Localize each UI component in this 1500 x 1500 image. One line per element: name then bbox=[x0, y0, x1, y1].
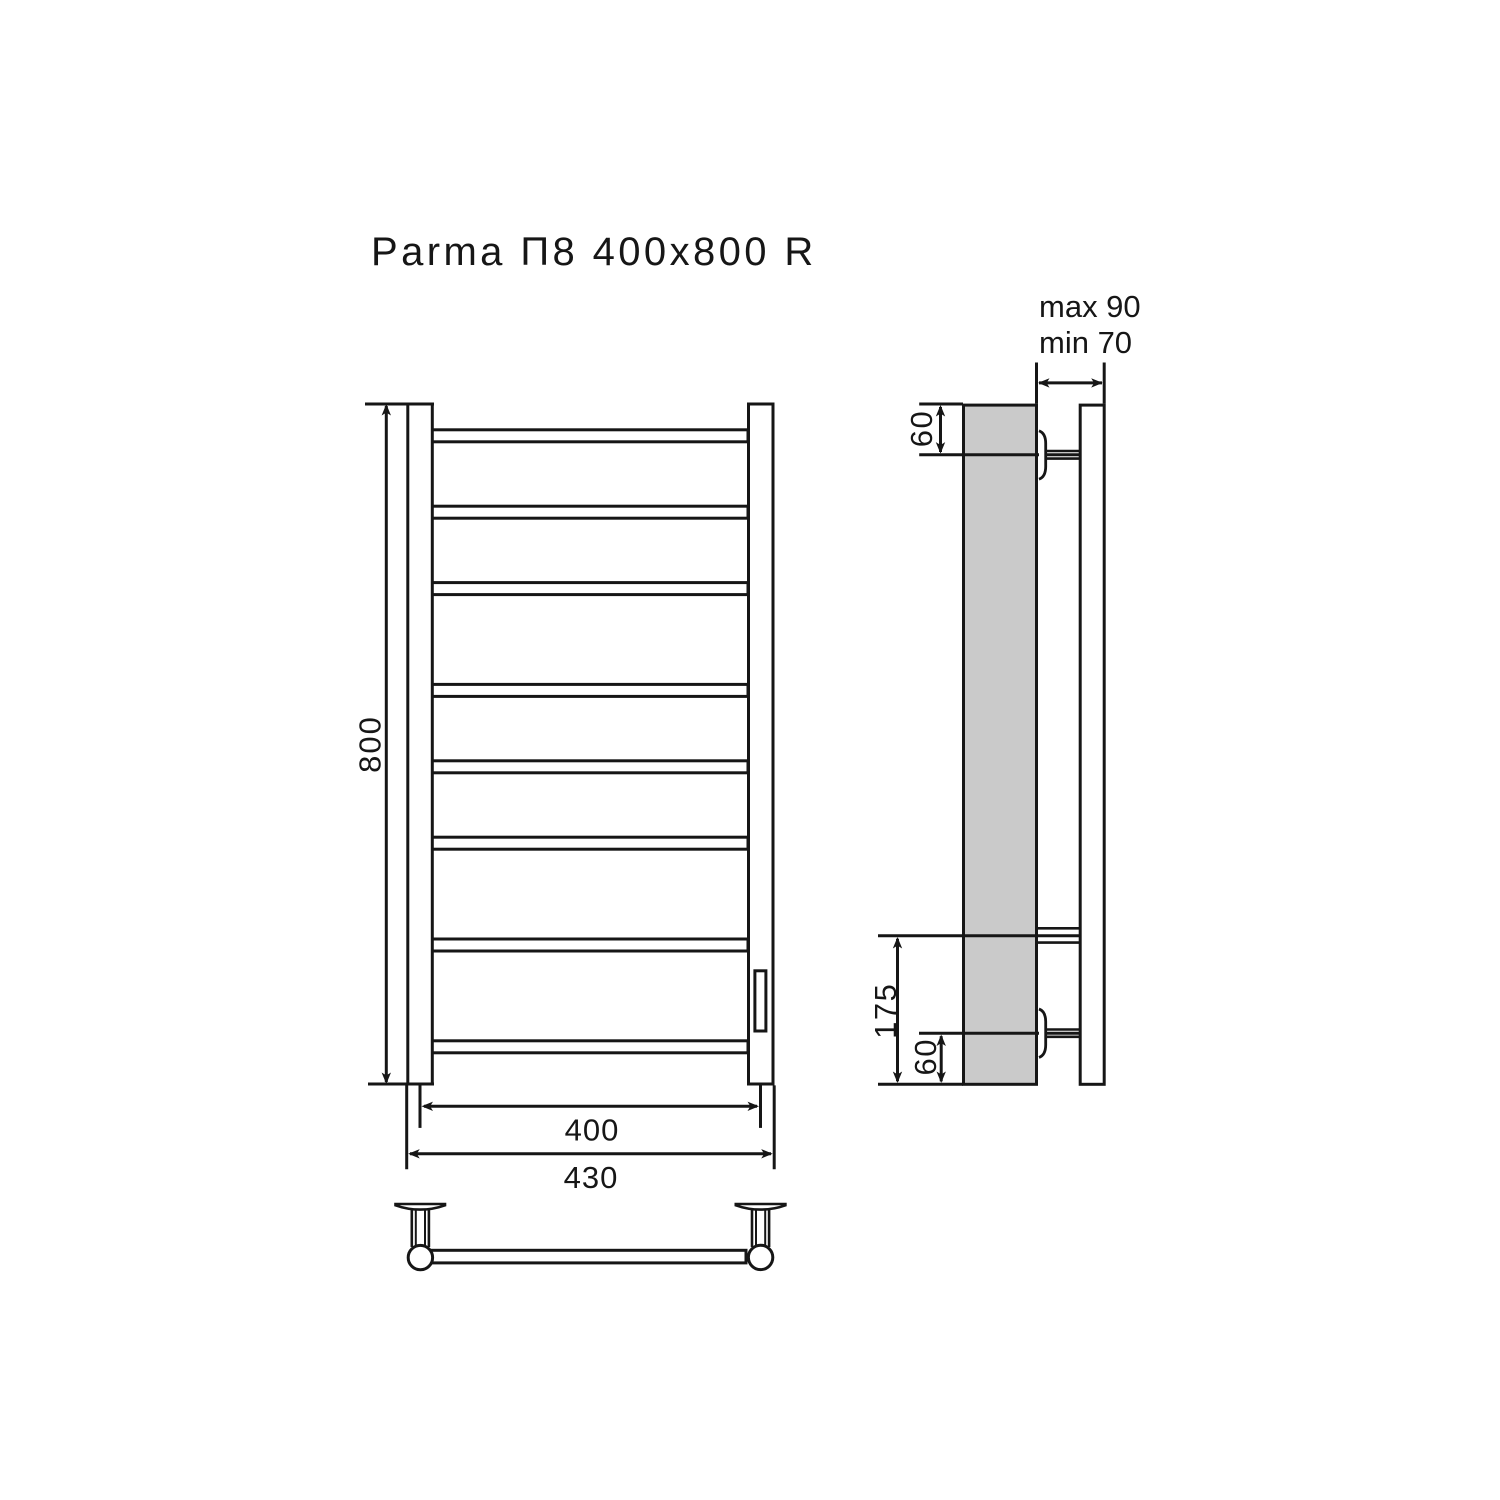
svg-text:800: 800 bbox=[353, 715, 388, 773]
svg-text:175: 175 bbox=[868, 983, 903, 1039]
svg-text:60: 60 bbox=[908, 1038, 943, 1075]
svg-text:max 90: max 90 bbox=[1039, 289, 1141, 324]
svg-text:min 70: min 70 bbox=[1039, 325, 1132, 360]
svg-text:60: 60 bbox=[904, 410, 939, 447]
svg-text:400: 400 bbox=[565, 1113, 620, 1148]
svg-text:430: 430 bbox=[564, 1160, 619, 1195]
svg-text:Parma П8 400x800 R: Parma П8 400x800 R bbox=[371, 230, 817, 274]
